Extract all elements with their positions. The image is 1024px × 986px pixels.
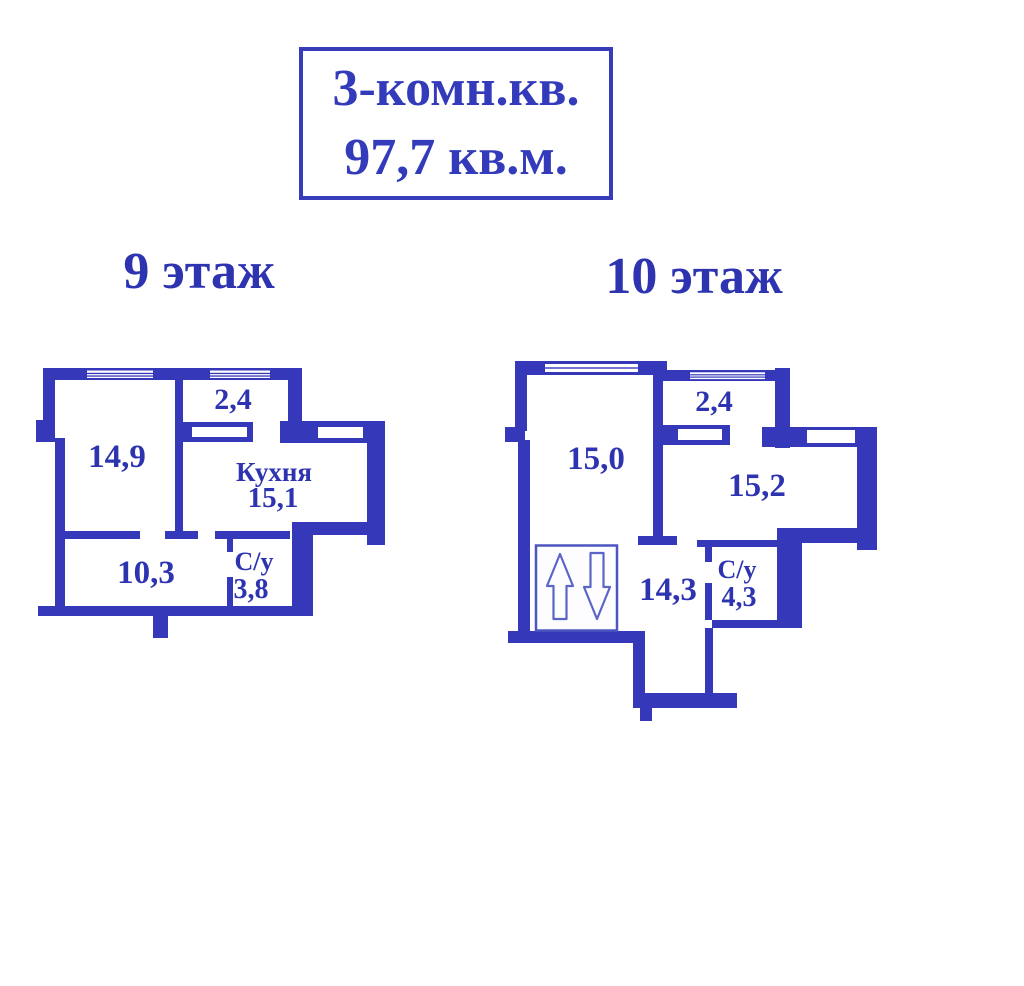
wall-wc-partition-upper: [705, 547, 712, 562]
wall-wc-top: [697, 540, 777, 547]
wall-left-lower: [518, 440, 530, 631]
floor-plan-page: 3-комн.кв. 97,7 кв.м. 9 этаж 10 этаж: [0, 0, 1024, 986]
window-icon: [192, 427, 247, 437]
window-icon: [807, 430, 855, 443]
wall-bottom: [38, 606, 313, 616]
wall-wc-partition-lower: [705, 583, 712, 620]
wall-wc-partition-lower: [227, 577, 233, 608]
room-label-balcony-area-f10: 2,4: [695, 387, 733, 417]
wall-left-lower: [55, 438, 65, 615]
window-icon: [545, 364, 638, 372]
plans-canvas: [0, 0, 1024, 986]
wall-wc-right: [292, 522, 313, 615]
wall-wc-partition-upper: [227, 536, 233, 552]
wall-corridor-left: [633, 643, 645, 693]
room-label-second-room-area-f10: 15,2: [728, 470, 786, 503]
wall-partition-room-hall: [653, 375, 663, 538]
wall-bottom: [508, 631, 645, 643]
room-label-wc-area-f9: 3,8: [234, 576, 269, 604]
wall-left-upper: [515, 361, 527, 431]
wall-partition-h-1: [63, 531, 140, 539]
wall-left-pilaster: [36, 420, 55, 442]
wall-corridor-bottom: [633, 693, 737, 708]
room-label-hall-area-f10: 14,3: [639, 574, 697, 607]
window-icon: [87, 371, 153, 379]
wall-partition-room-kitchen: [175, 378, 183, 536]
room-label-wc-name-f9: С/у: [235, 549, 274, 575]
wall-left-pilaster: [505, 427, 525, 442]
room-label-main-room-area-f9: 14,9: [88, 441, 146, 474]
wall-entry-tab: [640, 708, 652, 721]
room-label-balcony-area-f9: 2,4: [214, 385, 252, 415]
wall-partition-cap: [638, 536, 677, 545]
window-icon: [690, 372, 765, 379]
wall-entry-tab: [153, 616, 168, 638]
room-label-main-room-area-f10: 15,0: [567, 443, 625, 476]
floor-plan-10: [505, 361, 877, 721]
room-label-hall-area-f9: 10,3: [117, 557, 175, 590]
wall-balcony-right: [775, 368, 790, 448]
floor-plan-9: [36, 368, 385, 638]
wall-step-band: [777, 528, 865, 543]
room-label-kitchen-area-f9: 15,1: [248, 484, 299, 513]
wall-corridor-right: [705, 628, 713, 693]
wall-partition-h-2: [165, 531, 198, 539]
room-label-wc-name-f10: С/у: [718, 557, 757, 583]
wall-partition-h-3: [215, 531, 290, 539]
window-icon: [318, 427, 363, 438]
stairs-box: [536, 546, 617, 631]
window-icon: [678, 429, 722, 440]
window-icon: [210, 371, 270, 379]
room-label-wc-area-f10: 4,3: [722, 584, 757, 612]
